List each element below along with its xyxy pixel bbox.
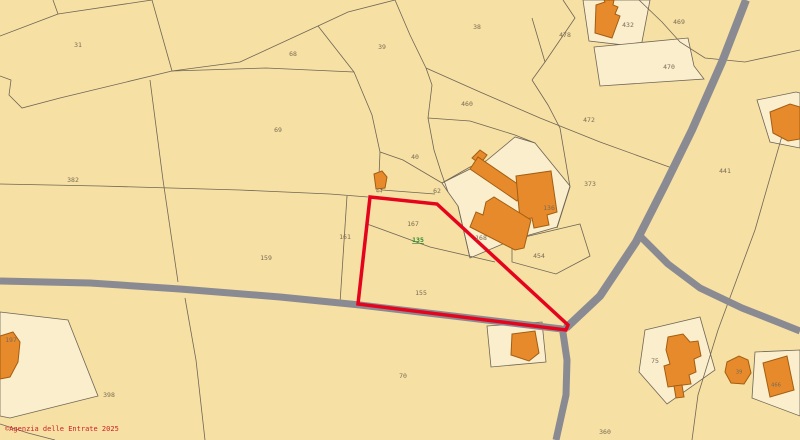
parcel-label[interactable]: 470 xyxy=(663,63,675,71)
parcel-label[interactable]: 68 xyxy=(289,50,297,58)
parcel-label[interactable]: 432 xyxy=(622,21,634,29)
parcel-label[interactable]: 382 xyxy=(67,176,79,184)
parcel-label[interactable]: 454 xyxy=(533,252,545,260)
parcel-label[interactable]: 168 xyxy=(475,234,487,242)
parcel-label[interactable]: 472 xyxy=(583,116,595,124)
parcel-label[interactable]: 478 xyxy=(559,31,571,39)
parcel-label[interactable]: 161 xyxy=(339,233,351,241)
cadastral-map[interactable]: 3168393847843246947046047269382404462373… xyxy=(0,0,800,440)
parcel-label[interactable]: 398 xyxy=(103,391,115,399)
parcel-label[interactable]: 40 xyxy=(411,153,419,161)
copyright-notice: ©Agenzia delle Entrate 2025 xyxy=(5,425,119,433)
parcel-label[interactable]: 70 xyxy=(399,372,407,380)
parcel-label[interactable]: 167 xyxy=(407,220,419,228)
parcel-label[interactable]: 466 xyxy=(771,383,781,389)
parcel-label[interactable]: 460 xyxy=(461,100,473,108)
building xyxy=(674,385,684,398)
selected-parcel-label[interactable]: 135 xyxy=(412,236,424,244)
parcel-label[interactable]: 39 xyxy=(378,43,386,51)
parcel-label[interactable]: 159 xyxy=(260,254,272,262)
parcel-label[interactable]: 75 xyxy=(651,357,659,365)
parcel-label[interactable]: 373 xyxy=(584,180,596,188)
parcel-label[interactable]: 155 xyxy=(415,289,427,297)
parcel-label[interactable]: 39 xyxy=(736,370,743,376)
parcel-label[interactable]: 136 xyxy=(543,204,555,212)
parcel-label[interactable]: 44 xyxy=(376,189,383,195)
cadastral-map-viewport[interactable]: 3168393847843246947046047269382404462373… xyxy=(0,0,800,440)
parcel-label[interactable]: 441 xyxy=(719,167,731,175)
building xyxy=(511,331,539,361)
parcel-label[interactable]: 360 xyxy=(599,428,611,436)
parcel-label[interactable]: 469 xyxy=(673,18,685,26)
parcel-label[interactable]: 197 xyxy=(5,336,17,344)
parcel-label[interactable]: 69 xyxy=(274,126,282,134)
urban-parcel[interactable] xyxy=(594,38,704,86)
parcel-label[interactable]: 31 xyxy=(74,41,82,49)
parcel-label[interactable]: 38 xyxy=(473,23,481,31)
parcel-label[interactable]: 62 xyxy=(433,187,441,195)
